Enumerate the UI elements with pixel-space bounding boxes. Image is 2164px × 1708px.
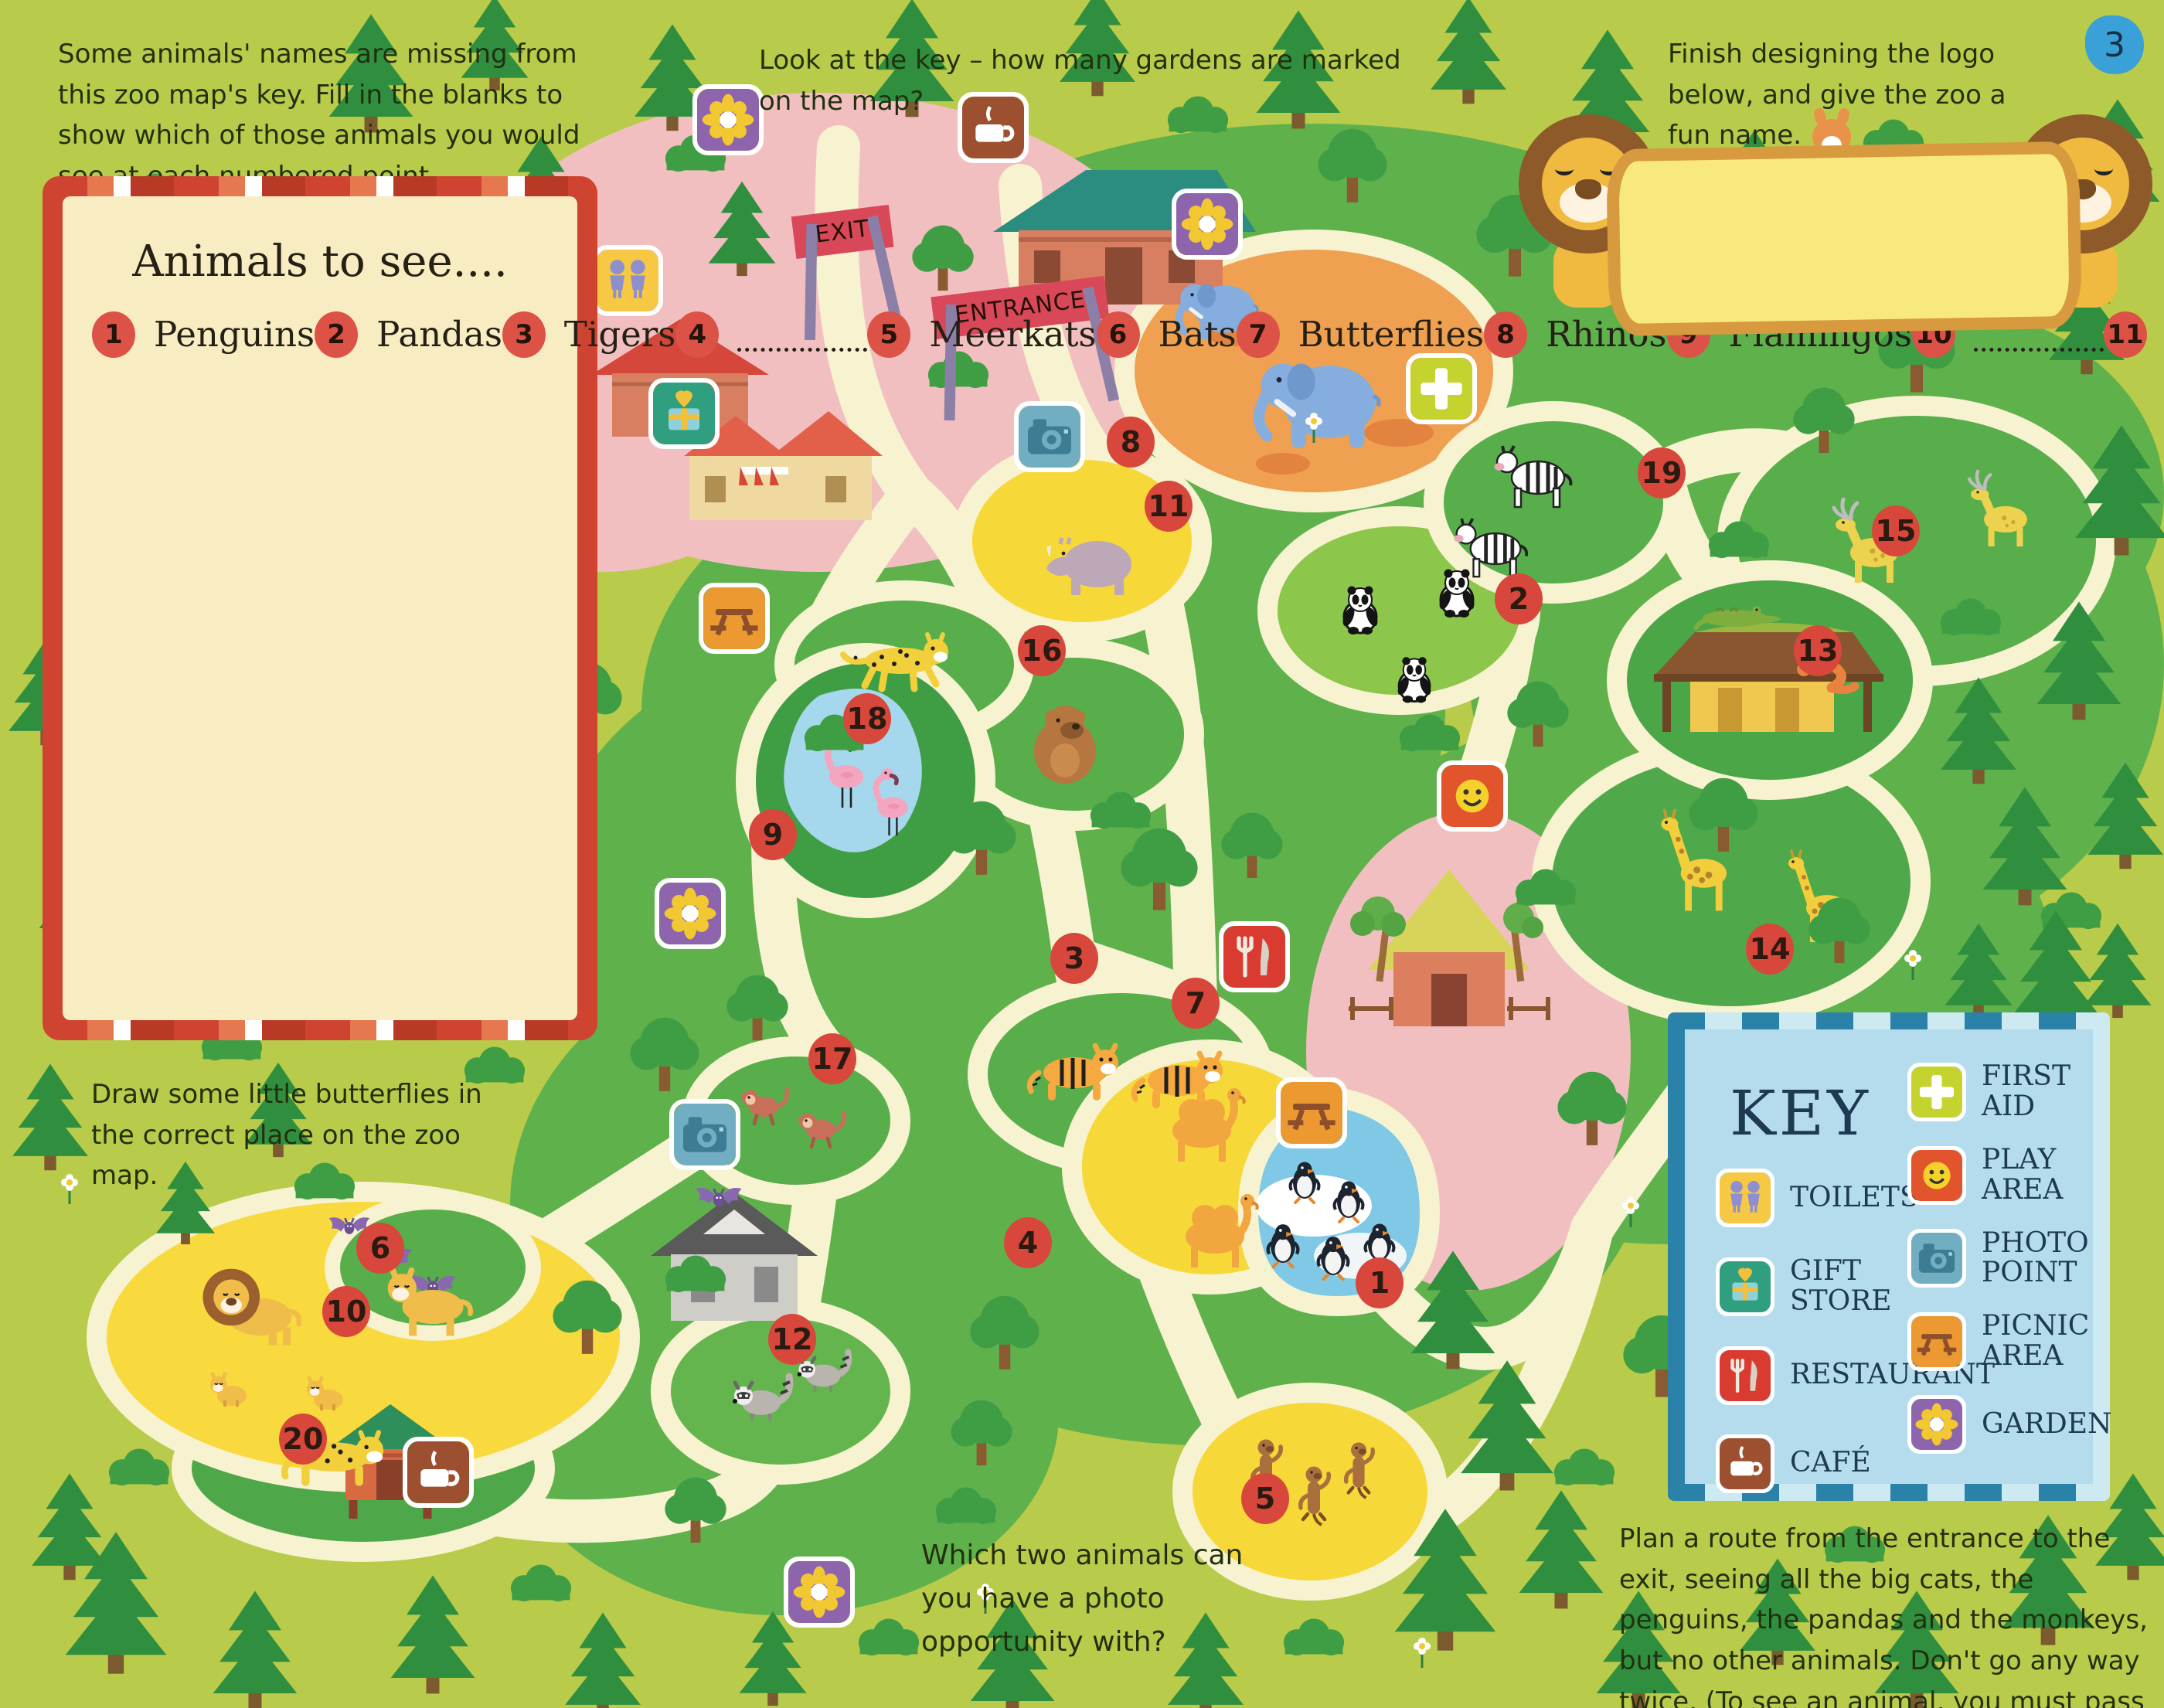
map-marker-18: 18 — [843, 693, 891, 744]
first-aid-icon — [1907, 1063, 1966, 1121]
animal-name-blank-field[interactable] — [737, 317, 867, 352]
map-marker-19: 19 — [1638, 447, 1686, 498]
key-entry: GIFT STORE — [1716, 1257, 1914, 1317]
map-gift-store-icon — [648, 378, 720, 449]
play-area-icon — [1907, 1146, 1966, 1205]
key-entry-label: TOILETS — [1790, 1183, 1914, 1213]
map-marker-4: 4 — [1004, 1217, 1052, 1268]
map-garden-icon — [692, 84, 764, 155]
map-toilets-icon — [592, 245, 663, 316]
animal-list-item: 5Meerkats — [867, 311, 1096, 358]
gift-store-icon — [1716, 1257, 1774, 1316]
map-garden-icon — [784, 1557, 855, 1628]
zoo-activity-page: Some animals' names are missing from thi… — [0, 0, 2164, 1708]
map-garden-icon — [655, 878, 726, 949]
photo-point-icon — [1907, 1229, 1966, 1288]
map-restaurant-icon — [1219, 921, 1290, 992]
map-photo-point-icon — [669, 1099, 740, 1170]
map-play-area-icon — [1437, 760, 1508, 832]
map-marker-15: 15 — [1872, 505, 1920, 556]
animal-list-item: 3Tigers — [502, 311, 675, 358]
map-key-panel: KEY TOILETSGIFT STORERESTAURANTCAFÉ FIRS… — [1668, 1012, 2110, 1501]
map-marker-6: 6 — [356, 1223, 404, 1274]
key-entry-label: PLAY AREA — [1982, 1145, 2105, 1206]
animal-list-item: 2Pandas — [315, 311, 502, 358]
instruction-draw-butterflies: Draw some little butterflies in the corr… — [91, 1074, 509, 1196]
animal-name: Pandas — [376, 314, 502, 355]
map-marker-13: 13 — [1794, 625, 1842, 676]
map-marker-7: 7 — [1172, 978, 1220, 1029]
animal-number-badge: 6 — [1097, 311, 1140, 358]
animal-name: Butterflies — [1298, 314, 1485, 355]
animal-list-item: 4 — [675, 311, 867, 358]
map-photo-point-icon — [1014, 401, 1085, 472]
picnic-area-icon — [1907, 1312, 1966, 1371]
key-entry-label: GIFT STORE — [1790, 1257, 1914, 1317]
map-marker-12: 12 — [768, 1314, 816, 1365]
map-garden-icon — [1172, 189, 1243, 260]
key-entry-label: CAFÉ — [1790, 1448, 1914, 1478]
animal-number-badge: 4 — [675, 311, 719, 358]
key-entry-label: PHOTO POINT — [1982, 1229, 2105, 1289]
animal-name: Penguins — [154, 314, 315, 355]
zoo-logo — [1507, 99, 2164, 354]
garden-icon — [1907, 1395, 1966, 1454]
key-entry-label: PICNIC AREA — [1982, 1312, 2105, 1372]
key-title: KEY — [1730, 1077, 1871, 1149]
animals-list-title: Animals to see.... — [63, 236, 577, 287]
key-entry: TOILETS — [1716, 1169, 1914, 1227]
instruction-plan-route: Plan a route from the entrance to the ex… — [1619, 1519, 2152, 1708]
map-marker-5: 5 — [1241, 1473, 1289, 1524]
animal-name: Bats — [1159, 314, 1237, 355]
key-entry-label: FIRST AID — [1982, 1062, 2105, 1122]
animal-number-badge: 1 — [92, 311, 135, 358]
cafe-icon — [1716, 1434, 1774, 1493]
animal-number-badge: 2 — [315, 311, 358, 358]
animal-list-item: 1Penguins — [92, 311, 315, 358]
key-entry: PHOTO POINT — [1907, 1229, 2105, 1289]
animal-list-item: 7Butterflies — [1237, 311, 1485, 358]
animal-number-badge: 7 — [1237, 311, 1280, 358]
key-entry: PICNIC AREA — [1907, 1312, 2105, 1372]
key-entry: GARDEN — [1907, 1395, 2105, 1454]
map-marker-14: 14 — [1746, 924, 1794, 975]
animal-number-badge: 3 — [502, 311, 546, 358]
map-marker-11: 11 — [1145, 481, 1193, 532]
map-first-aid-icon — [1406, 353, 1477, 424]
toilets-icon — [1716, 1169, 1774, 1227]
key-entry: FIRST AID — [1907, 1062, 2105, 1122]
map-cafe-icon — [403, 1437, 474, 1508]
map-marker-8: 8 — [1107, 417, 1155, 468]
key-entry: RESTAURANT — [1716, 1346, 1914, 1405]
map-marker-10: 10 — [322, 1286, 370, 1337]
map-picnic-area-icon — [1276, 1077, 1347, 1148]
page-number: 3 — [2085, 15, 2144, 74]
restaurant-icon — [1716, 1346, 1774, 1405]
map-marker-3: 3 — [1050, 933, 1098, 984]
map-marker-9: 9 — [749, 809, 797, 860]
instruction-fill-blanks: Some animals' names are missing from thi… — [58, 34, 630, 197]
map-marker-20: 20 — [279, 1414, 327, 1465]
map-marker-16: 16 — [1018, 625, 1066, 676]
key-entry-label: GARDEN — [1982, 1410, 2105, 1440]
map-marker-17: 17 — [808, 1033, 856, 1084]
animal-name: Meerkats — [929, 314, 1096, 355]
map-marker-1: 1 — [1356, 1257, 1404, 1308]
animal-list-item: 6Bats — [1097, 311, 1237, 358]
instruction-gardens-question: Look at the key – how many gardens are m… — [759, 40, 1439, 121]
animal-number-badge: 5 — [867, 311, 910, 358]
map-marker-2: 2 — [1495, 573, 1543, 624]
zoo-name-banner[interactable] — [1606, 141, 2082, 337]
map-picnic-area-icon — [699, 583, 770, 654]
key-entry: CAFÉ — [1716, 1434, 1914, 1493]
key-entry: PLAY AREA — [1907, 1145, 2105, 1206]
key-entry-label: RESTAURANT — [1790, 1360, 1914, 1390]
animal-name: Tigers — [564, 314, 675, 355]
animals-to-see-panel: Animals to see.... 1Penguins2Pandas3Tige… — [43, 176, 597, 1040]
photo-opportunity-question: Which two animals can you have a photo o… — [921, 1534, 1254, 1663]
